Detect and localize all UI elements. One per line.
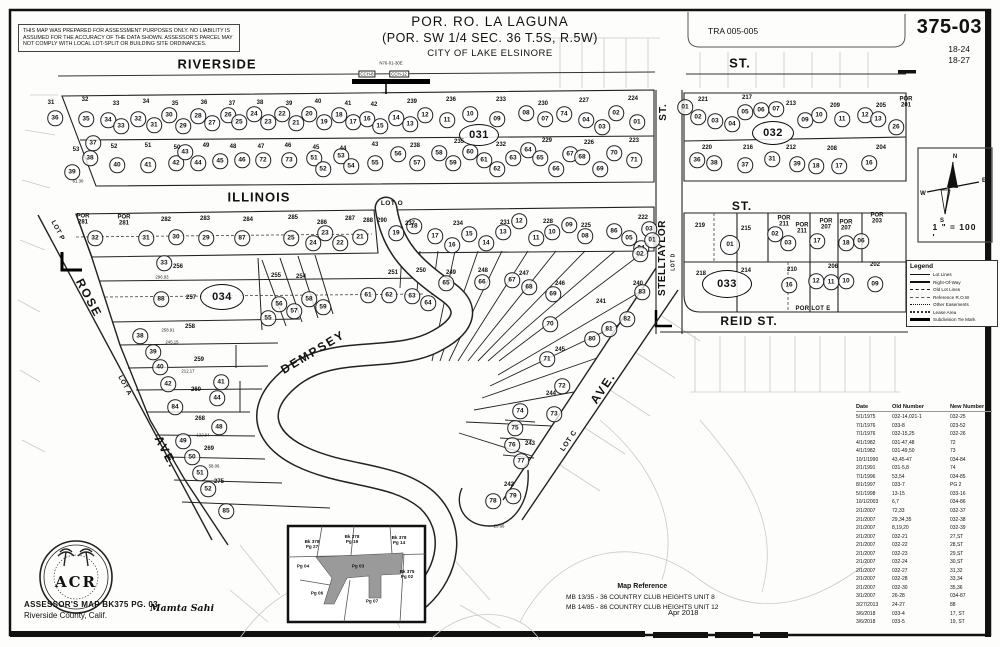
legend-item-label: Lot Lines (933, 272, 952, 277)
parcel-circle-13: 13 (402, 116, 418, 132)
lot-number-213: 213 (786, 101, 796, 107)
street-label-por-lot-e: POR LOT E (795, 306, 830, 312)
parcel-circle-11: 11 (439, 112, 455, 128)
cell-old-number: 72,33 (892, 507, 950, 516)
parcel-circle-63: 63 (505, 150, 521, 166)
cell-old-number: 031-5,8 (892, 464, 950, 473)
street-label-illinois: ILLINOIS (228, 191, 291, 204)
block-number-034: 034 (200, 284, 244, 310)
cell-old-number: 26-28 (892, 592, 950, 601)
parcel-circle-66: 66 (474, 274, 490, 290)
cell-date: 3/6/2018 (856, 610, 892, 619)
parcel-circle-29: 29 (198, 230, 214, 246)
cell-new-number: 032-39 (950, 524, 992, 533)
lot-number-206: 206 (828, 264, 838, 270)
parcel-circle-56: 56 (271, 296, 287, 312)
lot-number-219: 219 (695, 223, 705, 229)
cell-old-number: 033-8 (892, 422, 950, 431)
table-row: 2/1/2007032-2833,34 (856, 575, 992, 584)
parcel-circle-57: 57 (286, 303, 302, 319)
lot-number-53: 53 (73, 147, 80, 153)
tie-label-cch-12: CCH-12 (389, 71, 409, 78)
parcel-circle-33: 33 (156, 255, 172, 271)
table-row: 5/1/1975032-14,021-1032-25 (856, 413, 992, 422)
lot-number-232: 232 (496, 142, 506, 148)
parcel-circle-31: 31 (146, 117, 162, 133)
cell-date: 2/1/2007 (856, 575, 892, 584)
lot-number-285: 285 (288, 215, 298, 221)
cell-old-number: 8,19,20 (892, 524, 950, 533)
parcel-circle-30: 30 (168, 229, 184, 245)
lot-number-288: 288 (363, 218, 373, 224)
parcel-circle-38: 38 (706, 155, 722, 171)
legend-items: Lot LinesRight-Of-WayOld Lot LinesRefere… (910, 271, 994, 324)
parcel-circle-17: 17 (831, 158, 847, 174)
parcel-circle-12: 12 (808, 273, 824, 289)
lot-number-212: 212 (786, 145, 796, 151)
inset-page-label: Bk 378 Pg 27 (305, 539, 320, 549)
inset-page-label: Pg 03 (352, 563, 364, 568)
table-row: 3/27/201324-2788 (856, 601, 992, 610)
parcel-circle-67: 67 (504, 272, 520, 288)
parcel-circle-44: 44 (190, 155, 206, 171)
parcel-circle-40: 40 (152, 359, 168, 375)
table-row: 10/1/199043,45-47034-84 (856, 456, 992, 465)
col-old: Old Number (892, 404, 950, 410)
lot-number-48: 48 (230, 144, 237, 150)
lot-number-224: 224 (628, 96, 638, 102)
cell-date: 10/1/1990 (856, 456, 892, 465)
table-row: 3/6/2018033-417, ST (856, 610, 992, 619)
parcel-circle-72: 72 (255, 152, 271, 168)
parcel-circle-65: 65 (438, 275, 454, 291)
lot-number-205: 205 (876, 103, 886, 109)
lot-number-235: 235 (454, 139, 464, 145)
lot-number-POR-207: POR 207 (839, 220, 852, 233)
legend-sample-dots2 (910, 311, 930, 313)
inset-page-label: Bk 375 Pg 02 (400, 569, 415, 579)
parcel-circle-03: 03 (707, 113, 723, 129)
parcel-circle-12: 12 (511, 213, 527, 229)
parcel-circle-46: 46 (234, 152, 250, 168)
cell-new-number: 034-86 (950, 498, 992, 507)
footer-block: ASSESSOR'S MAP BK375 PG. 03 Riverside Co… (24, 600, 158, 620)
parcel-circle-79: 79 (505, 488, 521, 504)
assessor-map-page: THIS MAP WAS PREPARED FOR ASSESSMENT PUR… (0, 0, 1000, 647)
parcel-circle-01: 01 (720, 235, 740, 255)
parcel-circle-66: 66 (548, 161, 564, 177)
lot-number-223: 223 (629, 138, 639, 144)
cell-old-number: 032-15,25 (892, 430, 950, 439)
dimension-label: 122.94 (196, 433, 209, 438)
parcel-circle-32: 32 (87, 230, 103, 246)
dimension-label: 58.06 (209, 464, 220, 469)
block-number-032: 032 (752, 121, 794, 145)
parcel-circle-61: 61 (360, 287, 376, 303)
parcel-circle-38: 38 (82, 150, 98, 166)
cell-old-number: 13-15 (892, 490, 950, 499)
parcel-circle-72: 72 (554, 378, 570, 394)
parcel-circle-06: 06 (753, 102, 769, 118)
legend-item: Lease Area (910, 309, 994, 317)
parcel-circle-17: 17 (809, 233, 825, 249)
scale-text: 1 " = 100 ' (933, 222, 978, 242)
parcel-circle-81: 81 (601, 321, 617, 337)
parcel-circle-26: 26 (888, 119, 904, 135)
parcel-circle-48: 48 (211, 419, 227, 435)
table-row: 8/1/1997033-7PG 2 (856, 481, 992, 490)
parcel-circle-87: 87 (234, 230, 250, 246)
cell-new-number: 032-25 (950, 413, 992, 422)
parcel-circle-39: 39 (64, 164, 80, 180)
lot-number-38: 38 (257, 100, 264, 106)
lot-number-251: 251 (388, 270, 398, 276)
parcel-circle-86: 86 (606, 223, 622, 239)
parcel-circle-56: 56 (390, 146, 406, 162)
cell-old-number: 032-27 (892, 567, 950, 576)
col-date: Date (856, 404, 892, 410)
disclaimer-box: THIS MAP WAS PREPARED FOR ASSESSMENT PUR… (18, 24, 240, 52)
cell-new-number: 032-37 (950, 507, 992, 516)
lot-number-44: 44 (340, 146, 347, 152)
lot-number-221: 221 (698, 97, 708, 103)
lot-number-286: 286 (317, 220, 327, 226)
parcel-circle-65: 65 (532, 150, 548, 166)
lot-number-50: 50 (174, 145, 181, 151)
page-ref-1: 18-24 (948, 44, 970, 55)
lot-number-238: 238 (410, 143, 420, 149)
parcel-circle-20: 20 (301, 106, 317, 122)
parcel-circle-45: 45 (212, 153, 228, 169)
table-row: 4/1/1982031-49,5073 (856, 447, 992, 456)
cell-new-number: 19, ST (950, 618, 992, 627)
parcel-circle-74: 74 (556, 106, 572, 122)
legend-sample-dash (910, 289, 930, 290)
cell-old-number: 032-28 (892, 575, 950, 584)
cell-old-number: 29,34,35 (892, 516, 950, 525)
parcel-circle-11: 11 (834, 111, 850, 127)
legend-sample-block (910, 318, 930, 321)
parcel-circle-04: 04 (724, 116, 740, 132)
signature: Mamta Sahi (150, 603, 214, 614)
legend-item-label: Other Easements (933, 302, 969, 307)
sheet-number: 375-03 (917, 16, 982, 39)
inset-page-label: Bk 378 Pg 14 (392, 535, 407, 545)
street-label-lot-d: LOT D (672, 253, 677, 271)
cell-old-number: 032-24 (892, 558, 950, 567)
lot-number-216: 216 (743, 145, 753, 151)
lot-number-249: 249 (446, 270, 456, 276)
parcel-circle-06: 06 (853, 233, 869, 249)
lot-number-45: 45 (313, 145, 320, 151)
parcel-circle-02: 02 (608, 105, 624, 121)
parcel-circle-40: 40 (109, 157, 125, 173)
lot-number-210: 210 (787, 267, 797, 273)
cell-old-number: 53,54 (892, 473, 950, 482)
inset-page-label: Bk 378 Pg 19 (345, 534, 360, 544)
lot-number-243: 243 (525, 441, 535, 447)
parcel-circle-73: 73 (281, 152, 297, 168)
parcel-circle-18: 18 (838, 235, 854, 251)
dimension-label: 245.15 (165, 340, 178, 345)
parcel-circle-75: 75 (507, 420, 523, 436)
cell-date: 2/1/1991 (856, 464, 892, 473)
cell-old-number: 43,45-47 (892, 456, 950, 465)
legend-item: Old Lot Lines (910, 286, 994, 294)
parcel-circle-10: 10 (811, 107, 827, 123)
legend-sample-dashdot (910, 297, 930, 298)
parcel-circle-36: 36 (47, 110, 63, 126)
legend-item-label: Old Lot Lines (933, 287, 960, 292)
tie-label-cch-8: CCH-8 (358, 71, 375, 78)
page-ref-2: 18-27 (948, 55, 970, 66)
parcel-circle-13: 13 (495, 224, 511, 240)
lot-number-52: 52 (111, 144, 118, 150)
parcel-circle-70: 70 (606, 145, 622, 161)
street-label-st-: ST. (732, 200, 752, 212)
parcel-circle-64: 64 (420, 295, 436, 311)
lot-number-233: 233 (496, 97, 506, 103)
legend-title: Legend (910, 263, 994, 270)
lot-number-POR-207: POR 207 (819, 219, 832, 232)
cell-date: 4/1/1982 (856, 447, 892, 456)
parcel-circle-76: 76 (504, 437, 520, 453)
parcel-circle-17: 17 (427, 228, 443, 244)
lot-number-254: 254 (296, 274, 306, 280)
dimension-label: N76-01-30E (379, 61, 402, 66)
table-row: 2/1/2007032-2731,32 (856, 567, 992, 576)
parcel-circle-37: 37 (737, 157, 753, 173)
lot-number-246: 246 (555, 281, 565, 287)
table-row: 2/1/200772,33032-37 (856, 507, 992, 516)
parcel-circle-10: 10 (544, 224, 560, 240)
lot-number-290: 290 (377, 218, 387, 224)
lot-number-51: 51 (145, 143, 152, 149)
lot-number-32: 32 (82, 97, 89, 103)
parcel-circle-57: 57 (409, 155, 425, 171)
lot-number-204: 204 (876, 145, 886, 151)
map-title: POR. RO. LA LAGUNA (330, 14, 650, 29)
cell-date: 2/1/2007 (856, 533, 892, 542)
parcel-circle-59: 59 (445, 155, 461, 171)
map-reference-entry: MB 13/35 - 36 COUNTRY CLUB HEIGHTS UNIT … (566, 593, 718, 603)
parcel-circle-25: 25 (231, 114, 247, 130)
street-label-reid-st-: REID ST. (720, 315, 777, 327)
street-label-lot-o: LOT O (381, 201, 403, 208)
parcel-circle-04: 04 (578, 112, 594, 128)
parcel-circle-37: 37 (85, 135, 101, 151)
lot-number-41: 41 (345, 101, 352, 107)
legend-item: Subdivision Tie Mark (910, 316, 994, 324)
cell-new-number: 032-38 (950, 516, 992, 525)
parcel-circle-55: 55 (367, 155, 383, 171)
lot-number-227: 227 (579, 98, 589, 104)
lot-number-241: 241 (596, 299, 606, 305)
parcel-circle-07: 07 (537, 111, 553, 127)
parcel-circle-03: 03 (780, 235, 796, 251)
lot-number-47: 47 (258, 144, 265, 150)
lot-number-248: 248 (478, 268, 488, 274)
cell-new-number: 023-52 (950, 422, 992, 431)
lot-number-245: 245 (555, 347, 565, 353)
parcel-circle-44: 44 (209, 390, 225, 406)
lot-number-218: 218 (696, 271, 706, 277)
parcel-circle-31: 31 (764, 151, 780, 167)
lot-number-31: 31 (48, 100, 55, 106)
lot-number-220: 220 (702, 145, 712, 151)
cell-new-number: 27,ST (950, 533, 992, 542)
parcel-circle-12: 12 (417, 107, 433, 123)
legend-item-label: Subdivision Tie Mark (933, 317, 975, 322)
block-number-031: 031 (459, 124, 499, 146)
parcel-circle-19: 19 (316, 114, 332, 130)
lot-number-269: 269 (204, 446, 214, 452)
parcel-circle-39: 39 (789, 156, 805, 172)
cell-new-number: 034-85 (950, 473, 992, 482)
parcel-circle-09: 09 (489, 111, 505, 127)
parcel-circle-78: 78 (485, 493, 501, 509)
legend-item: Other Easements (910, 301, 994, 309)
lot-number-46: 46 (285, 143, 292, 149)
lot-number-49: 49 (203, 143, 210, 149)
cell-new-number: 73 (950, 447, 992, 456)
table-row: 2/1/2007032-2228,ST (856, 541, 992, 550)
parcel-circle-15: 15 (372, 118, 388, 134)
parcel-circle-70: 70 (542, 316, 558, 332)
cell-date: 2/1/2007 (856, 541, 892, 550)
inset-page-label: Pg 07 (366, 598, 378, 603)
parcel-circle-42: 42 (160, 376, 176, 392)
cell-date: 5/1/1998 (856, 490, 892, 499)
cell-new-number: 33,34 (950, 575, 992, 584)
lot-number-222: 222 (638, 215, 648, 221)
lot-number-275: 275 (214, 479, 224, 485)
cell-old-number: 032-14,021-1 (892, 413, 950, 422)
parcel-circle-68: 68 (574, 149, 590, 165)
parcel-circle-58: 58 (431, 145, 447, 161)
parcel-circle-22: 22 (332, 235, 348, 251)
parcel-circle-27: 27 (204, 115, 220, 131)
lot-number-39: 39 (286, 101, 293, 107)
legend-item: Lot Lines (910, 271, 994, 279)
map-title-block: POR. RO. LA LAGUNA (POR. SW 1/4 SEC. 36 … (330, 14, 650, 59)
cell-date: 3/1/2007 (856, 592, 892, 601)
parcel-circle-18: 18 (808, 158, 824, 174)
cell-new-number: 28,ST (950, 541, 992, 550)
cell-old-number: 6,7 (892, 498, 950, 507)
cell-new-number: 74 (950, 464, 992, 473)
lot-number-255: 255 (271, 273, 281, 279)
parcel-circle-01: 01 (629, 114, 645, 130)
county-label: Riverside County, Calif. (24, 611, 158, 620)
parcel-circle-55: 55 (260, 310, 276, 326)
cell-date: 7/1/1996 (856, 473, 892, 482)
legend-item-label: Reference R.O.W (933, 295, 969, 300)
table-row: 2/1/2007032-2430,ST (856, 558, 992, 567)
lot-number-217: 217 (742, 95, 752, 101)
parcel-circle-01: 01 (644, 232, 660, 248)
lot-number-33: 33 (113, 101, 120, 107)
lot-number-231: 231 (500, 220, 510, 226)
parcel-circle-50: 50 (184, 449, 200, 465)
lot-number-225: 225 (581, 223, 591, 229)
parcel-circle-08: 08 (577, 228, 593, 244)
cell-date: 2/1/2007 (856, 567, 892, 576)
parcel-circle-31: 31 (138, 230, 154, 246)
street-label-st-: ST. (729, 57, 751, 70)
lot-number-229: 229 (542, 138, 552, 144)
table-row: 4/1/1982031-47,4872 (856, 439, 992, 448)
parcel-circle-16: 16 (444, 237, 460, 253)
lot-number-POR-281: POR 281 (76, 214, 89, 227)
table-row: 3/1/200726-28034-87 (856, 592, 992, 601)
lot-number-208: 208 (827, 146, 837, 152)
parcel-circle-29: 29 (175, 118, 191, 134)
legend-sample-thin (910, 274, 930, 275)
revision-table-header: Date Old Number New Number (856, 404, 992, 412)
lot-number-40: 40 (315, 99, 322, 105)
cell-date: 2/1/2007 (856, 550, 892, 559)
parcel-circle-41: 41 (140, 157, 156, 173)
parcel-circle-09: 09 (867, 276, 883, 292)
lot-number-260: 260 (191, 387, 201, 393)
table-row: 3/6/2018033-519, ST (856, 618, 992, 627)
parcel-circle-16: 16 (781, 277, 797, 293)
cell-new-number: 034-87 (950, 592, 992, 601)
cell-old-number: 032-30 (892, 584, 950, 593)
cell-date: 7/1/1976 (856, 430, 892, 439)
table-row: 2/1/2007032-2329,ST (856, 550, 992, 559)
cell-old-number: 032-21 (892, 533, 950, 542)
lot-number-POR-211: POR 211 (777, 216, 790, 229)
lot-number-259: 259 (194, 357, 204, 363)
parcel-circle-54: 54 (343, 158, 359, 174)
cell-date: 2/1/2007 (856, 516, 892, 525)
parcel-circle-69: 69 (592, 161, 608, 177)
assessor-map-label: ASSESSOR'S MAP BK375 PG. 03 (24, 600, 158, 609)
lot-number-250: 250 (416, 268, 426, 274)
lot-number-257: 257 (186, 295, 196, 301)
table-row: 2/1/2007032-2127,ST (856, 533, 992, 542)
cell-date: 3/6/2018 (856, 618, 892, 627)
cell-new-number: 88 (950, 601, 992, 610)
cell-new-number: PG 2 (950, 481, 992, 490)
parcel-circle-41: 41 (213, 374, 229, 390)
parcel-circle-77: 77 (513, 453, 529, 469)
lot-number-237: 237 (405, 221, 415, 227)
lot-number-214: 214 (741, 268, 751, 274)
parcel-circle-09: 09 (561, 217, 577, 233)
lot-number-283: 283 (200, 216, 210, 222)
parcel-circle-13: 13 (870, 111, 886, 127)
legend-sample-dots (910, 304, 930, 305)
parcel-circle-30: 30 (161, 107, 177, 123)
lot-number-POR-211: POR 211 (795, 223, 808, 236)
parcel-circle-49: 49 (175, 433, 191, 449)
lot-number-42: 42 (371, 102, 378, 108)
table-row: 2/1/2007032-3035,36 (856, 584, 992, 593)
cell-new-number: 032-26 (950, 430, 992, 439)
map-date: Apr 2018 (668, 608, 698, 617)
lot-number-244: 244 (546, 391, 556, 397)
table-row: 10/1/20036,7034-86 (856, 498, 992, 507)
cell-old-number: 031-47,48 (892, 439, 950, 448)
lot-number-240: 240 (633, 281, 643, 287)
parcel-circle-11: 11 (823, 274, 839, 290)
parcel-circle-59: 59 (315, 299, 331, 315)
parcel-circle-22: 22 (274, 106, 290, 122)
cell-old-number: 033-5 (892, 618, 950, 627)
